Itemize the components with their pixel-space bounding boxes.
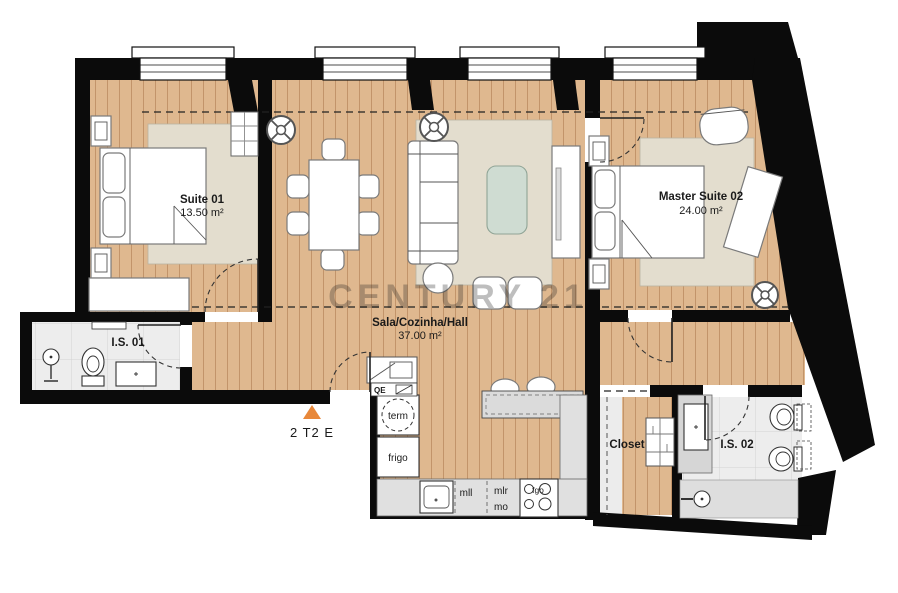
ceiling-fan-icon	[752, 282, 778, 308]
tv	[556, 168, 561, 240]
room-area-suite01: 13.50 m²	[180, 207, 224, 219]
chair	[287, 212, 309, 235]
nightstand	[589, 136, 609, 166]
nightstand	[589, 259, 609, 289]
dining-table	[309, 160, 359, 250]
window-icon	[460, 47, 559, 80]
room-label-suite01: Suite 01	[180, 194, 225, 206]
coffee-table	[487, 166, 527, 234]
entry-cabinet	[367, 357, 417, 383]
room-label-is01: I.S. 01	[111, 337, 145, 349]
wardrobe-icon	[646, 418, 674, 466]
shelf-unit	[231, 112, 258, 156]
label-frigo: frigo	[388, 453, 408, 464]
label-mo: mo	[494, 502, 508, 513]
washbasin-counter	[116, 362, 156, 386]
unit-marker-label: 2 T2 E	[290, 425, 334, 440]
room-label-master: Master Suite 02	[659, 191, 743, 203]
floor-plan: CENTURY 21 Suite 01 13.50 m² Master Suit…	[0, 0, 898, 593]
room-label-sala: Sala/Cozinha/Hall	[372, 317, 468, 329]
window-icon	[605, 47, 705, 80]
chaise	[698, 106, 750, 147]
suite01-wardrobe	[89, 278, 189, 311]
closet-floor-left	[600, 397, 622, 515]
toilet-icon	[770, 404, 802, 430]
chair	[357, 175, 379, 198]
ceiling-fan-icon	[267, 116, 295, 144]
toilet-icon	[82, 348, 104, 386]
unit-marker: 2 T2 E	[290, 405, 334, 440]
unit-marker-icon	[303, 405, 321, 419]
chair	[357, 212, 379, 235]
watermark-text: CENTURY 21	[328, 278, 588, 316]
sofa	[408, 141, 458, 264]
chair	[321, 249, 344, 270]
chair	[287, 175, 309, 198]
window-icon	[132, 47, 234, 80]
kitchen-sink	[420, 481, 453, 513]
shelf	[92, 322, 126, 329]
label-mll: mll	[460, 488, 473, 499]
ceiling-fan-icon	[420, 113, 448, 141]
label-fgo: fgo	[532, 485, 544, 495]
floor-plan-svg: CENTURY 21 Suite 01 13.50 m² Master Suit…	[0, 0, 898, 593]
vestibule-floor	[600, 322, 805, 385]
room-label-is02: I.S. 02	[720, 439, 753, 451]
room-area-master: 24.00 m²	[679, 205, 723, 217]
nightstand	[91, 248, 111, 278]
room-label-closet: Closet	[609, 439, 644, 451]
label-term: term	[388, 411, 408, 422]
room-area-sala: 37.00 m²	[398, 330, 442, 342]
label-qe: QE	[374, 386, 386, 395]
counter-right	[560, 395, 587, 481]
nightstand	[91, 116, 111, 146]
window-icon	[315, 47, 415, 80]
label-mlr: mlr	[494, 486, 509, 497]
chair	[322, 139, 345, 160]
